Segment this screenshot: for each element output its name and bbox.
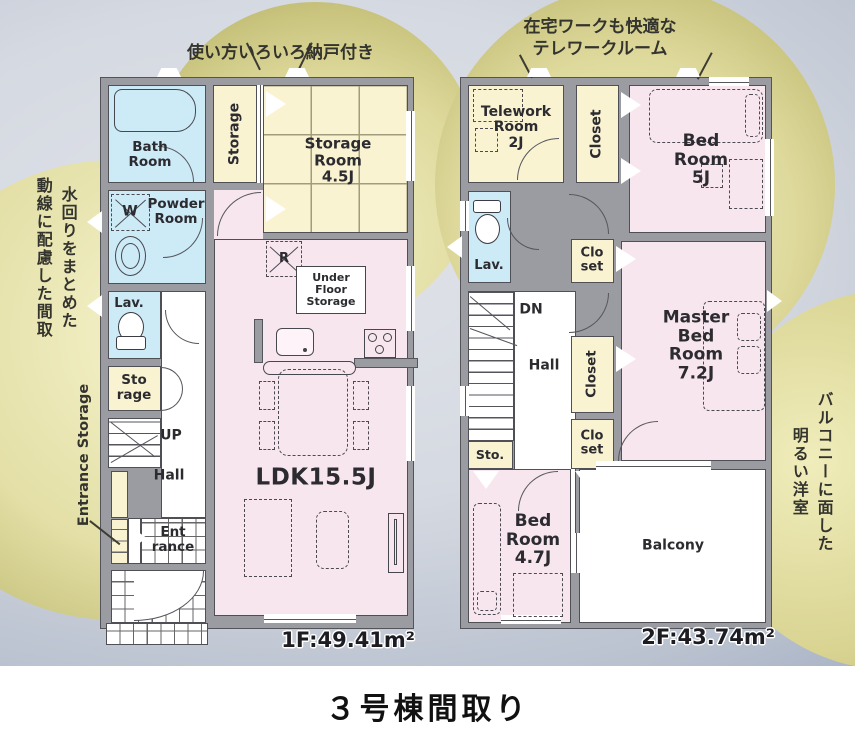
washer-label: W bbox=[122, 204, 137, 219]
sink-drain bbox=[303, 348, 307, 352]
floor1-area-label: 1F:49.41m² bbox=[220, 628, 415, 652]
toilet-tank-icon bbox=[473, 200, 501, 213]
storage-note: 使い方いろいろ納戸付き bbox=[168, 38, 393, 63]
kitchen-sink-icon bbox=[276, 328, 314, 356]
chair-icon bbox=[353, 421, 369, 450]
toilet-icon bbox=[475, 214, 500, 244]
closet-opening bbox=[257, 85, 263, 183]
window bbox=[264, 614, 356, 623]
chair-icon bbox=[353, 381, 369, 410]
window bbox=[406, 386, 415, 461]
room-label-closet-a: Clo set bbox=[581, 247, 604, 276]
room-label-lav-1f: Lav. bbox=[114, 297, 143, 311]
hall-label-1f: Hall bbox=[154, 468, 185, 483]
window bbox=[709, 77, 749, 86]
stairs-up-label: UP bbox=[160, 428, 182, 443]
door-arc-bedroom5 bbox=[569, 194, 609, 234]
chair-icon bbox=[259, 381, 275, 410]
room-label-closet-b: Clo set bbox=[581, 430, 604, 459]
tv-board-icon bbox=[388, 513, 404, 573]
room-label-storage-2f: Sto. bbox=[476, 448, 504, 462]
toilet-tank-icon bbox=[116, 336, 146, 350]
window bbox=[406, 266, 415, 331]
floorplan-page: 使い方いろいろ納戸付き 在宅ワークも快適な テレワークルーム 水回りをまとめた … bbox=[0, 0, 855, 736]
entrance-storage bbox=[111, 519, 128, 564]
room-label-powder: Powder Room bbox=[147, 197, 204, 227]
dining-table-icon bbox=[278, 369, 348, 456]
room-label-bedroom47: Bed Room 4.7J bbox=[506, 512, 560, 568]
title-bar: ３号棟間取り bbox=[0, 666, 855, 736]
desk-icon bbox=[729, 159, 763, 209]
balcony-note: バルコニーに面した 明るい洋室 bbox=[786, 352, 836, 592]
room-label-closet-north: Closet bbox=[589, 109, 604, 158]
entrance-label: Ent rance bbox=[152, 525, 195, 555]
room-label-storage-hall: Storage bbox=[227, 103, 242, 165]
window bbox=[460, 201, 469, 231]
page-title: ３号棟間取り bbox=[0, 684, 855, 728]
pillow-icon bbox=[477, 591, 497, 611]
chair-icon bbox=[259, 421, 275, 450]
pillow-icon bbox=[737, 313, 761, 341]
pillow-icon bbox=[745, 94, 760, 137]
room-label-bath: Bath Room bbox=[128, 140, 171, 170]
counter-wall bbox=[354, 358, 418, 368]
window-balcony bbox=[596, 461, 711, 470]
floor2-area-label: 2F:43.74m² bbox=[580, 625, 775, 649]
door-arc-lav2 bbox=[507, 218, 539, 250]
window bbox=[460, 386, 469, 416]
window bbox=[765, 139, 774, 216]
floor2-plan: Telework Room 2J Closet Bed Room 5J Lav.… bbox=[460, 77, 772, 629]
room-label-telework: Telework Room 2J bbox=[481, 105, 551, 151]
room-label-storage-room: Storage Room 4.5J bbox=[305, 135, 372, 185]
floor1-plan: Bath Room Storage Storage Room 4.5J W Po… bbox=[100, 77, 414, 629]
plumbing-note: 水回りをまとめた 動線に配慮した間取 bbox=[30, 133, 80, 383]
coffee-table-icon bbox=[316, 511, 349, 569]
room-label-lav-2f: Lav. bbox=[474, 259, 503, 273]
basin-inner bbox=[121, 243, 140, 269]
room-label-bedroom5: Bed Room 5J bbox=[674, 132, 728, 188]
room-label-closet-mid: Closet bbox=[585, 350, 600, 397]
balcony-label: Balcony bbox=[642, 538, 704, 553]
bathtub-icon bbox=[114, 89, 196, 132]
under-floor-storage-label: Under Floor Storage bbox=[307, 272, 356, 308]
sofa-icon bbox=[244, 499, 292, 577]
room-label-storage-small: Sto rage bbox=[117, 373, 152, 403]
desk-icon bbox=[513, 573, 563, 617]
entrance-storage-note: Entrance Storage bbox=[76, 345, 92, 565]
pillow-icon bbox=[737, 346, 761, 374]
stove-icon bbox=[364, 329, 396, 358]
hall-label-2f: Hall bbox=[529, 358, 560, 373]
door-arc-hall bbox=[569, 293, 609, 333]
refrigerator-label: R bbox=[279, 252, 289, 266]
ldk-label: LDK15.5J bbox=[256, 465, 377, 490]
stairs-down-label: DN bbox=[519, 302, 542, 317]
window-balcony-side bbox=[571, 533, 580, 573]
kitchen-wall-stub bbox=[254, 319, 263, 363]
entrance-porch bbox=[106, 623, 208, 645]
telework-note: 在宅ワークも快適な テレワークルーム bbox=[495, 16, 705, 60]
window bbox=[406, 111, 415, 181]
entrance-storage-upper bbox=[111, 471, 128, 518]
room-label-master: Master Bed Room 7.2J bbox=[663, 309, 730, 384]
